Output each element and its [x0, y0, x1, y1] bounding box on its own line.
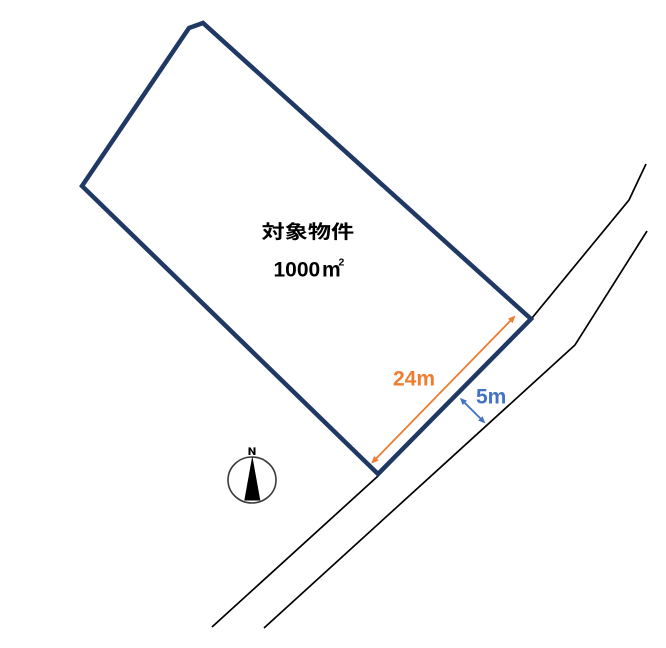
svg-text:24m: 24m: [393, 368, 435, 391]
svg-text:2: 2: [339, 256, 345, 268]
svg-text:5m: 5m: [476, 386, 506, 409]
svg-text:1000: 1000: [274, 259, 321, 282]
